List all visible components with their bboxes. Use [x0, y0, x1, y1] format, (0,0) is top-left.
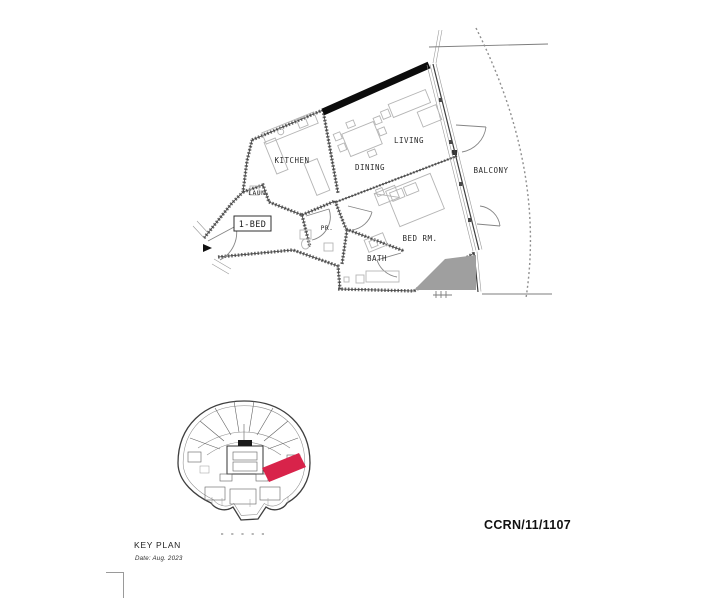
label-dining: DINING [355, 163, 385, 172]
key-plan-title: KEY PLAN [134, 540, 181, 550]
living-furniture [379, 88, 442, 140]
unit-type-label: 1-BED [239, 220, 267, 230]
unit-reference-number: CCRN/11/1107 [484, 518, 571, 532]
entry-arrow-icon [203, 244, 212, 252]
floor-plan-sheet: 1-BED KITCHEN DINING LIVING BALCONY LAUN… [0, 0, 718, 600]
curved-facade-line [476, 28, 530, 298]
powder-room-fixtures [300, 230, 333, 251]
unit-floor-plan: 1-BED KITCHEN DINING LIVING BALCONY LAUN… [193, 28, 552, 298]
party-wall [323, 65, 429, 112]
key-plan-date: Date: Aug. 2023 [135, 555, 183, 562]
drawing-canvas: 1-BED KITCHEN DINING LIVING BALCONY LAUN… [0, 0, 718, 600]
corridor-wall-stubs [193, 221, 231, 274]
label-bedroom: BED RM. [402, 234, 437, 243]
label-laundry: LAUN. [248, 190, 269, 197]
label-balcony: BALCONY [473, 166, 508, 175]
key-plan [178, 401, 310, 534]
unit-location-highlight [262, 453, 306, 482]
label-kitchen: KITCHEN [274, 156, 309, 165]
label-powder-room: PR. [321, 225, 334, 232]
sheet-corner-mark [106, 572, 124, 598]
key-plan-core [220, 424, 268, 481]
shaded-corner-area [414, 255, 476, 290]
label-living: LIVING [394, 136, 424, 145]
bed-furniture [375, 169, 444, 230]
label-bath: BATH [367, 254, 387, 263]
kitchen-counters [262, 112, 330, 195]
